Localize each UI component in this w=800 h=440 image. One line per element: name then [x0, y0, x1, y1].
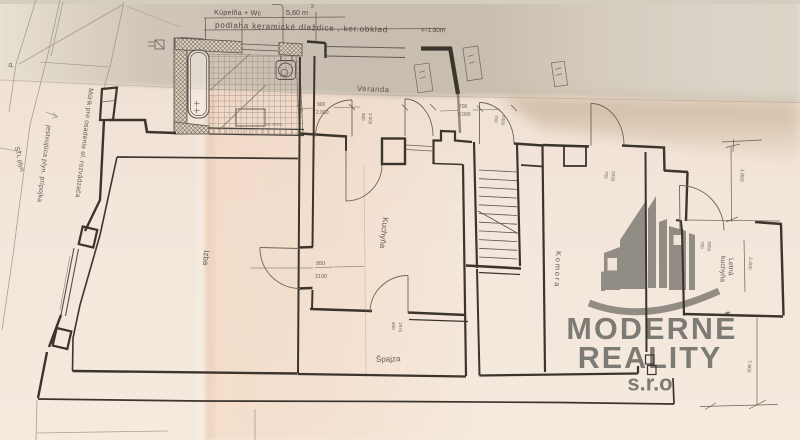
svg-text:750: 750: [493, 115, 499, 123]
svg-text:5,60 m: 5,60 m: [286, 8, 308, 17]
svg-text:900: 900: [317, 102, 326, 108]
svg-text:2.000: 2.000: [368, 113, 373, 125]
svg-text:900: 900: [361, 113, 366, 121]
svg-text:Komora: Komora: [553, 251, 563, 288]
svg-text:750: 750: [603, 171, 609, 179]
svg-text:2.000: 2.000: [458, 112, 471, 118]
svg-text:3050: 3050: [706, 241, 712, 252]
svg-text:1.800: 1.800: [738, 169, 745, 182]
svg-text:Špajza: Špajza: [376, 354, 401, 364]
svg-text:Kúpelňa + Wc: Kúpelňa + Wc: [214, 8, 262, 18]
svg-text:ker.dlažba: ker.dlažba: [266, 123, 282, 127]
svg-text:2030: 2030: [610, 171, 616, 182]
svg-text:2: 2: [311, 4, 314, 10]
svg-text:Izba: Izba: [201, 250, 211, 266]
svg-text:v=1,80m: v=1,80m: [421, 27, 445, 35]
svg-text:1970: 1970: [398, 322, 403, 333]
svg-text:Letná: Letná: [727, 258, 734, 276]
svg-text:kuchyňa: kuchyňa: [719, 256, 726, 282]
svg-text:2100: 2100: [315, 274, 327, 280]
svg-text:2.400: 2.400: [747, 257, 753, 270]
svg-text:750: 750: [699, 241, 705, 249]
svg-text:7.900: 7.900: [746, 360, 752, 373]
svg-text:700: 700: [459, 104, 468, 110]
svg-text:800: 800: [391, 322, 396, 330]
svg-text:2.000: 2.000: [316, 110, 329, 116]
svg-text:Veranda: Veranda: [357, 84, 390, 94]
svg-text:2000: 2000: [500, 115, 506, 126]
svg-text:950: 950: [316, 261, 325, 267]
